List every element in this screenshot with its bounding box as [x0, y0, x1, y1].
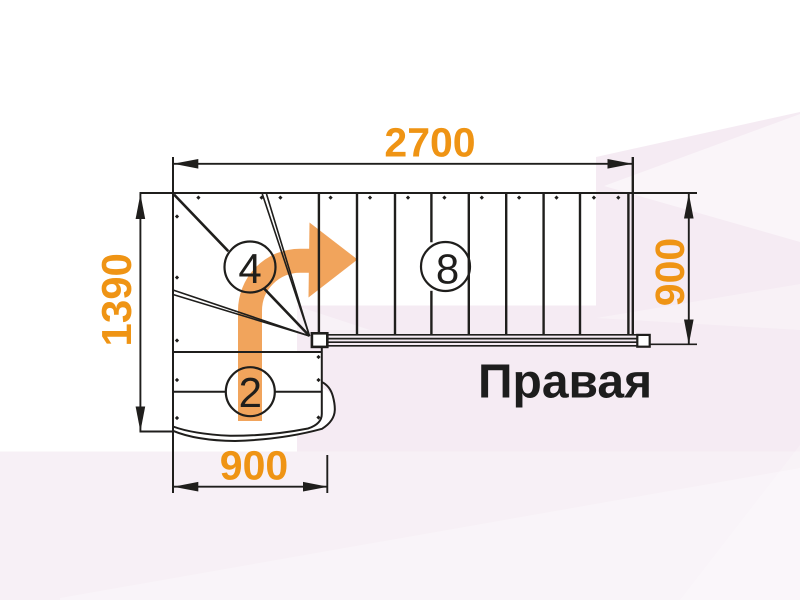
svg-text:Правая: Правая: [478, 356, 652, 409]
svg-text:2700: 2700: [384, 120, 475, 166]
svg-text:1390: 1390: [93, 253, 140, 346]
svg-text:900: 900: [220, 443, 288, 489]
svg-text:8: 8: [436, 246, 459, 293]
svg-text:900: 900: [647, 238, 693, 306]
svg-text:4: 4: [238, 245, 261, 292]
svg-text:2: 2: [239, 369, 262, 416]
